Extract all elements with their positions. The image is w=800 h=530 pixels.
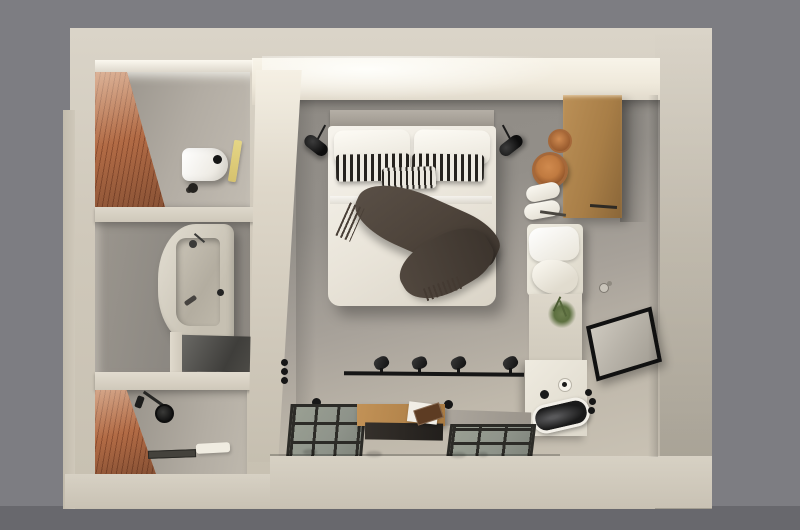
floor-spot-right [444, 400, 453, 409]
toilet [182, 148, 228, 181]
right-wall-inner-shadow [648, 95, 658, 457]
floorplan-render [0, 0, 800, 530]
wall-hook-2 [589, 398, 596, 405]
wall-hook-1 [585, 389, 592, 396]
bath-faucet [189, 240, 197, 248]
edge-shadow-2 [366, 451, 382, 457]
right-wall-shade [655, 28, 712, 509]
wall-knob-1 [281, 359, 288, 366]
bath-mat [196, 442, 230, 454]
wall-hook-3 [588, 407, 595, 414]
wall-sconce-knob-2 [607, 281, 612, 286]
bottom-wall-left [65, 474, 270, 508]
spotlight-4-stem [509, 368, 512, 374]
soap-dish-dot [562, 382, 567, 387]
wall-wc-bathroom [95, 207, 270, 222]
left-wall-step [63, 110, 75, 509]
toilet-brush [188, 183, 198, 193]
toilet-flush-button [213, 155, 222, 164]
lit-wall-glow [262, 56, 562, 100]
edge-shadow-4 [478, 452, 488, 457]
edge-shadow-1 [303, 449, 317, 455]
soap-dish-black [540, 390, 549, 399]
bottom-wall-right [270, 456, 712, 508]
edge-shadow-3 [450, 452, 466, 458]
spotlight-2-stem [418, 368, 421, 374]
wardrobe-shadow [620, 100, 648, 222]
spotlight-3-stem [457, 368, 460, 374]
shower-drain [148, 449, 196, 459]
spotlight-1-stem [380, 368, 383, 374]
bathtub-basin [176, 238, 220, 326]
bath-floor-drain [217, 289, 224, 296]
wall-knob-2 [281, 368, 288, 375]
wall-bathroom-shower [95, 372, 257, 390]
rattan-basket-small [548, 129, 572, 153]
wall-knob-3 [281, 377, 288, 384]
wardrobe [563, 95, 622, 218]
background-strip [0, 506, 800, 530]
shower-head [155, 404, 174, 423]
bench-cushion [528, 226, 580, 263]
coffee-table-tray [365, 422, 443, 440]
